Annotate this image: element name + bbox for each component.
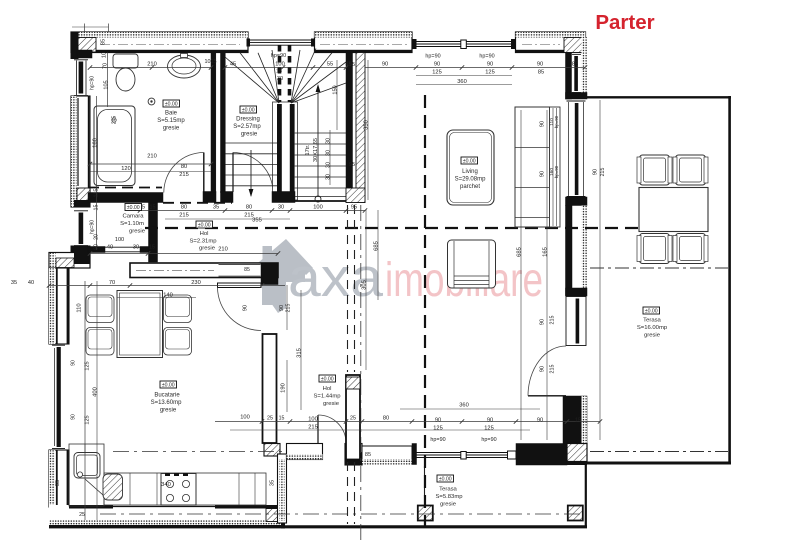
svg-text:685: 685: [517, 247, 523, 257]
svg-text:80: 80: [246, 205, 252, 211]
svg-text:90: 90: [593, 169, 599, 175]
svg-text:S=5.83mp: S=5.83mp: [435, 494, 463, 500]
svg-text:105: 105: [104, 80, 110, 89]
svg-text:80: 80: [181, 164, 187, 170]
svg-text:30: 30: [278, 205, 284, 211]
svg-text:210: 210: [147, 62, 157, 68]
svg-text:215: 215: [550, 316, 556, 325]
svg-text:30: 30: [326, 138, 332, 144]
svg-text:15: 15: [211, 59, 217, 65]
svg-text:80: 80: [181, 205, 187, 211]
svg-text:hp=90: hp=90: [425, 54, 440, 60]
svg-text:90: 90: [487, 418, 493, 424]
svg-text:Baie: Baie: [165, 111, 178, 117]
svg-text:90: 90: [435, 418, 441, 424]
svg-text:17tr.: 17tr.: [305, 144, 311, 155]
svg-text:140: 140: [163, 293, 173, 299]
svg-text:115: 115: [94, 189, 100, 198]
svg-text:95: 95: [349, 62, 355, 68]
svg-text:axa: axa: [288, 246, 383, 308]
svg-text:35: 35: [55, 480, 61, 486]
svg-text:90: 90: [71, 360, 77, 366]
svg-text:90: 90: [279, 305, 285, 311]
svg-text:110: 110: [77, 303, 83, 312]
svg-text:parchet: parchet: [460, 184, 480, 190]
svg-text:hp=90: hp=90: [271, 53, 286, 59]
svg-text:215: 215: [179, 213, 189, 219]
svg-text:hp=90: hp=90: [90, 76, 96, 90]
svg-text:165: 165: [543, 247, 549, 257]
svg-text:305: 305: [362, 280, 368, 290]
svg-text:gresie: gresie: [323, 401, 340, 407]
svg-text:40: 40: [28, 280, 34, 286]
svg-text:±0.00: ±0.00: [127, 205, 140, 211]
svg-text:±0.00: ±0.00: [645, 309, 658, 315]
svg-text:40: 40: [107, 245, 113, 251]
svg-text:Hol: Hol: [200, 231, 209, 237]
svg-text:85: 85: [572, 62, 578, 68]
svg-text:210: 210: [147, 154, 157, 160]
svg-text:125: 125: [485, 70, 495, 76]
svg-text:360: 360: [459, 403, 469, 409]
svg-text:100: 100: [115, 237, 124, 243]
svg-text:90: 90: [537, 418, 543, 424]
svg-text:10: 10: [205, 59, 211, 65]
svg-text:gresie: gresie: [241, 132, 258, 138]
svg-text:gresie: gresie: [199, 246, 216, 252]
svg-text:210: 210: [218, 247, 228, 253]
svg-text:90: 90: [382, 62, 388, 68]
svg-text:±0.00: ±0.00: [321, 377, 334, 383]
svg-text:230: 230: [191, 280, 201, 286]
svg-text:±0.00: ±0.00: [463, 159, 476, 165]
svg-text:85: 85: [101, 39, 107, 45]
svg-text:15: 15: [94, 205, 100, 211]
svg-text:245: 245: [112, 116, 118, 125]
svg-text:S=29.08mp: S=29.08mp: [455, 177, 487, 183]
svg-text:125: 125: [433, 426, 443, 432]
svg-text:15: 15: [149, 245, 155, 251]
svg-text:85: 85: [538, 70, 544, 76]
svg-text:Terasa: Terasa: [643, 318, 661, 324]
svg-text:S=2.31mp: S=2.31mp: [189, 239, 217, 245]
svg-text:125: 125: [432, 70, 442, 76]
svg-text:90: 90: [487, 62, 493, 68]
svg-text:315: 315: [297, 348, 303, 358]
svg-text:±0.00: ±0.00: [162, 383, 175, 389]
svg-text:80: 80: [383, 416, 389, 422]
svg-text:70: 70: [103, 63, 109, 69]
svg-text:20: 20: [94, 234, 100, 240]
svg-text:hp=90: hp=90: [479, 54, 494, 60]
svg-text:35: 35: [270, 480, 276, 486]
svg-text:350: 350: [364, 120, 370, 130]
svg-text:S=5.15mp: S=5.15mp: [157, 118, 185, 124]
svg-text:gresie: gresie: [129, 229, 146, 235]
svg-text:30: 30: [326, 162, 332, 168]
svg-text:90: 90: [243, 305, 249, 311]
svg-text:S=1.44mp: S=1.44mp: [313, 394, 341, 400]
svg-text:95: 95: [349, 162, 355, 168]
svg-text:Camara: Camara: [123, 214, 145, 220]
svg-text:70: 70: [109, 280, 115, 286]
svg-text:340: 340: [161, 482, 171, 488]
svg-text:Parter: Parter: [595, 11, 654, 34]
svg-text:30X17.65: 30X17.65: [313, 138, 319, 162]
svg-text:400: 400: [93, 387, 99, 397]
svg-text:15: 15: [276, 69, 282, 75]
svg-text:100: 100: [308, 417, 318, 423]
svg-text:215: 215: [308, 425, 318, 431]
svg-text:215: 215: [286, 304, 292, 313]
svg-text:355: 355: [252, 218, 262, 224]
svg-text:90: 90: [540, 171, 546, 177]
svg-text:100: 100: [313, 205, 323, 211]
svg-text:90: 90: [540, 366, 546, 372]
svg-text:hp=90: hp=90: [90, 220, 96, 234]
svg-text:85: 85: [365, 452, 371, 458]
svg-text:S=2.57mp: S=2.57mp: [233, 124, 261, 130]
svg-text:95: 95: [351, 205, 357, 211]
svg-text:85: 85: [244, 267, 250, 273]
svg-text:55: 55: [327, 62, 333, 68]
svg-text:30: 30: [326, 150, 332, 156]
svg-text:Hol: Hol: [323, 386, 332, 392]
svg-text:190: 190: [281, 383, 287, 393]
svg-text:685: 685: [374, 241, 380, 251]
svg-text:S=16.00mp: S=16.00mp: [637, 325, 668, 331]
svg-text:150: 150: [333, 85, 339, 94]
svg-text:hp=90: hp=90: [554, 115, 559, 128]
svg-text:gresie: gresie: [440, 502, 457, 508]
svg-text:25: 25: [350, 416, 356, 422]
svg-text:gresie: gresie: [644, 333, 661, 339]
svg-text:160: 160: [93, 138, 99, 148]
svg-text:215: 215: [600, 168, 606, 177]
svg-text:10: 10: [102, 52, 108, 58]
svg-text:90: 90: [434, 62, 440, 68]
svg-text:215: 215: [550, 365, 556, 374]
svg-text:35: 35: [11, 280, 17, 286]
svg-text:hp=90: hp=90: [554, 165, 559, 178]
svg-text:15: 15: [150, 205, 156, 211]
svg-text:215: 215: [179, 172, 189, 178]
svg-text:360: 360: [457, 79, 467, 85]
svg-text:15: 15: [575, 418, 581, 424]
svg-text:Bucatarie: Bucatarie: [154, 393, 180, 399]
svg-text:35: 35: [213, 205, 219, 211]
svg-text:25: 25: [79, 512, 85, 518]
svg-text:90: 90: [540, 319, 546, 325]
svg-text:30: 30: [277, 76, 283, 82]
svg-text:gresie: gresie: [160, 408, 177, 414]
svg-text:±0.00: ±0.00: [198, 223, 211, 229]
svg-text:S=13.60mp: S=13.60mp: [151, 400, 183, 406]
svg-text:90: 90: [537, 62, 543, 68]
svg-text:Living: Living: [462, 169, 478, 175]
svg-text:gresie: gresie: [163, 126, 180, 132]
svg-text:125: 125: [85, 361, 91, 370]
svg-text:hp=90: hp=90: [481, 437, 496, 443]
svg-text:hp=90: hp=90: [430, 437, 445, 443]
svg-text:±0.00: ±0.00: [439, 477, 452, 483]
svg-text:15: 15: [279, 416, 285, 422]
svg-text:125: 125: [85, 415, 91, 424]
svg-text:90: 90: [71, 414, 77, 420]
svg-text:Terasa: Terasa: [439, 487, 457, 493]
svg-text:±0.00: ±0.00: [242, 108, 255, 114]
svg-text:Dressing: Dressing: [236, 117, 260, 123]
svg-text:90: 90: [540, 121, 546, 127]
svg-text:30: 30: [326, 174, 332, 180]
svg-text:100: 100: [240, 415, 250, 421]
svg-text:120: 120: [121, 166, 131, 172]
svg-text:S=1.10m: S=1.10m: [120, 221, 144, 227]
svg-text:45: 45: [230, 62, 236, 68]
svg-text:125: 125: [484, 426, 494, 432]
svg-text:30: 30: [133, 245, 139, 251]
svg-text:100: 100: [275, 62, 285, 68]
svg-text:±0.00: ±0.00: [165, 102, 178, 108]
svg-text:90: 90: [94, 244, 100, 250]
svg-text:25: 25: [267, 416, 273, 422]
